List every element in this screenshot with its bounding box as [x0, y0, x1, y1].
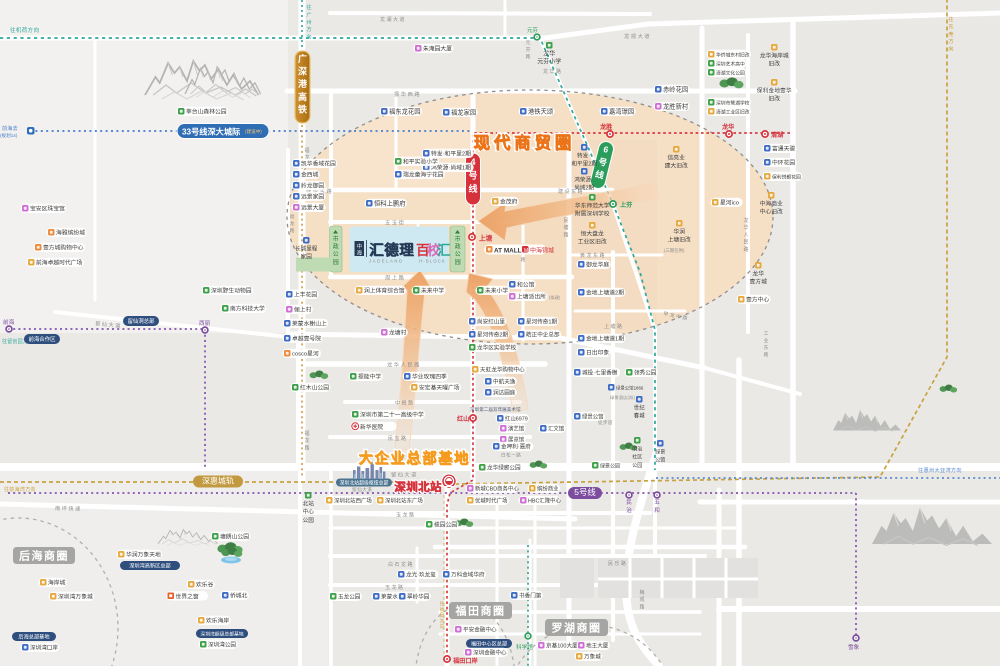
- svg-text:工业区旧改: 工业区旧改: [578, 238, 607, 246]
- svg-text:路: 路: [563, 231, 568, 238]
- svg-text:龙塘村: 龙塘村: [389, 329, 407, 337]
- svg-text:民宝路: 民宝路: [388, 435, 408, 442]
- svg-text:红山: 红山: [457, 415, 469, 423]
- svg-text:芬: 芬: [526, 46, 531, 53]
- svg-text:平安金融中心: 平安金融中心: [463, 626, 497, 634]
- svg-text:中海锦城: 中海锦城: [530, 247, 554, 255]
- svg-text:天虹龙华购物中心: 天虹龙华购物中心: [480, 366, 525, 374]
- svg-text:华: 华: [743, 224, 748, 231]
- svg-text:龙胜新村: 龙胜新村: [663, 102, 689, 111]
- svg-text:龙: 龙: [743, 217, 748, 224]
- svg-text:龙华海岸城: 龙华海岸城: [760, 52, 789, 60]
- svg-text:深圳湾口岸: 深圳湾口岸: [30, 644, 58, 652]
- svg-text:信亮业: 信亮业: [668, 154, 686, 162]
- svg-text:公园: 公园: [303, 517, 315, 524]
- svg-text:润达圆庭: 润达圆庭: [493, 389, 516, 397]
- svg-text:星河传奇2期: 星河传奇2期: [477, 331, 508, 339]
- svg-text:旧改: 旧改: [768, 95, 780, 103]
- svg-text:上塘: 上塘: [479, 234, 493, 243]
- svg-text:公: 公: [455, 251, 461, 258]
- svg-text:城投·七里香榭: 城投·七里香榭: [582, 369, 618, 377]
- svg-text:尚安红山里: 尚安红山里: [477, 318, 505, 326]
- svg-text:前海去: 前海去: [2, 125, 18, 132]
- svg-text:往惠州大亚湾方向: 往惠州大亚湾方向: [918, 466, 962, 474]
- svg-text:向: 向: [306, 33, 311, 41]
- svg-text:金西城: 金西城: [301, 171, 319, 179]
- svg-text:中海商业: 中海商业: [760, 200, 783, 208]
- svg-text:白松一路: 白松一路: [501, 452, 521, 459]
- svg-text:万象城: 万象城: [584, 653, 601, 661]
- svg-text:港: 港: [298, 78, 308, 89]
- svg-text:龙华区实验学校: 龙华区实验学校: [477, 344, 517, 352]
- svg-text:恒科上鹏府: 恒科上鹏府: [374, 199, 405, 208]
- svg-text:前海卓越时代广场: 前海卓越时代广场: [36, 259, 83, 267]
- svg-text:后海总部基地: 后海总部基地: [18, 633, 49, 641]
- svg-text:社区: 社区: [632, 454, 642, 461]
- svg-text:振能中学: 振能中学: [358, 373, 381, 381]
- svg-text:路: 路: [304, 444, 309, 451]
- svg-text:H-BLOCK: H-BLOCK: [419, 259, 446, 264]
- svg-text:海雅缤纷城: 海雅缤纷城: [56, 229, 85, 237]
- svg-text:罗湖商圈: 罗湖商圈: [552, 621, 602, 635]
- svg-text:福: 福: [304, 147, 309, 154]
- svg-text:工: 工: [764, 331, 769, 337]
- svg-text:园: 园: [455, 259, 461, 266]
- svg-text:元: 元: [526, 40, 531, 46]
- svg-text:梅: 梅: [639, 589, 644, 596]
- svg-text:深圳第二届双年展美术馆: 深圳第二届双年展美术馆: [470, 406, 521, 413]
- svg-text:龙观大道: 龙观大道: [624, 32, 651, 40]
- svg-text:清湖工业区旧改: 清湖工业区旧改: [716, 109, 750, 116]
- svg-text:留仙洞总部: 留仙洞总部: [128, 317, 156, 325]
- svg-text:侨城北: 侨城北: [230, 592, 248, 600]
- svg-text:广: 广: [298, 53, 307, 64]
- svg-text:上塘旧改: 上塘旧改: [668, 236, 691, 244]
- svg-text:民乐路: 民乐路: [608, 560, 628, 567]
- svg-text:莞: 莞: [948, 30, 953, 38]
- svg-text:旧改: 旧改: [768, 60, 780, 68]
- svg-text:往: 往: [440, 600, 445, 606]
- svg-text:保利悦都花园: 保利悦都花园: [772, 174, 801, 181]
- svg-text:西丽: 西丽: [199, 320, 211, 327]
- svg-text:塘朗山公园: 塘朗山公园: [220, 533, 249, 541]
- svg-text:东: 东: [764, 344, 769, 351]
- svg-text:演艺馆: 演艺馆: [508, 425, 525, 433]
- svg-text:往: 往: [948, 15, 953, 23]
- svg-text:远景家园: 远景家园: [301, 193, 324, 201]
- svg-text:俪上村: 俪上村: [294, 306, 312, 314]
- svg-text:新华医院: 新华医院: [360, 423, 383, 431]
- svg-text:徒步道: 徒步道: [598, 419, 613, 426]
- svg-text:元芬: 元芬: [527, 26, 538, 34]
- svg-text:路: 路: [521, 256, 526, 263]
- svg-text:广: 广: [306, 10, 311, 18]
- svg-text:民: 民: [563, 218, 568, 224]
- svg-text:未来中学: 未来中学: [421, 287, 444, 295]
- svg-text:路: 路: [743, 246, 748, 253]
- svg-text:深圳湾超级总部基地: 深圳湾超级总部基地: [200, 631, 243, 638]
- svg-text:莘台山森林公园: 莘台山森林公园: [186, 108, 227, 116]
- svg-text:M: M: [524, 248, 528, 254]
- svg-text:华侨城东村旧改: 华侨城东村旧改: [716, 52, 750, 59]
- svg-text:龙华路: 龙华路: [543, 68, 563, 75]
- svg-text:金地上塘道1期: 金地上塘道1期: [586, 335, 624, 343]
- svg-text:前海合作区: 前海合作区: [29, 335, 57, 343]
- svg-text:方: 方: [948, 37, 953, 45]
- svg-text:玉龙路: 玉龙路: [396, 512, 416, 519]
- svg-text:尚域2期: 尚域2期: [574, 184, 594, 192]
- svg-text:上塘派出所: 上塘派出所: [517, 293, 546, 301]
- svg-text:深惠城轨: 深惠城轨: [202, 476, 234, 486]
- svg-text:绿景: 绿景: [655, 449, 665, 456]
- svg-text:上丰花园: 上丰花园: [294, 291, 317, 299]
- svg-text:龙华: 龙华: [721, 123, 735, 131]
- svg-text:安宏基天曜广场: 安宏基天曜广场: [419, 384, 460, 392]
- svg-text:绿景公园: 绿景公园: [600, 463, 620, 470]
- svg-text:黄龙东路: 黄龙东路: [580, 252, 606, 259]
- svg-text:未来小学: 未来小学: [485, 287, 508, 295]
- svg-text:长城里程: 长城里程: [295, 245, 318, 253]
- svg-text:雪象: 雪象: [848, 643, 860, 651]
- svg-text:海: 海: [357, 249, 362, 257]
- svg-text:金茂府: 金茂府: [500, 198, 518, 206]
- svg-text:福龙家园: 福龙家园: [451, 108, 476, 117]
- svg-text:深圳艺术高中: 深圳艺术高中: [716, 61, 745, 68]
- svg-text:前海: 前海: [3, 318, 15, 326]
- svg-text:园: 园: [333, 259, 339, 266]
- svg-text:万科金域华府: 万科金域华府: [451, 571, 485, 579]
- svg-text:欢乐海岸: 欢乐海岸: [206, 617, 229, 625]
- svg-text:玉龙公园: 玉龙公园: [338, 593, 361, 601]
- svg-text:深圳北站西广场: 深圳北站西广场: [334, 497, 372, 505]
- svg-text:星河传奇1期: 星河传奇1期: [526, 318, 557, 326]
- svg-text:华润: 华润: [673, 228, 685, 236]
- svg-text:深圳野生动物园: 深圳野生动物园: [211, 287, 252, 295]
- svg-text:科学馆: 科学馆: [516, 643, 533, 651]
- svg-text:公园: 公园: [632, 463, 642, 469]
- svg-text:(建设中): (建设中): [245, 128, 262, 135]
- svg-text:HBC汇隆中心: HBC汇隆中心: [528, 497, 562, 505]
- svg-text:(三期在供): (三期在供): [664, 247, 685, 254]
- svg-text:塘: 塘: [563, 224, 568, 231]
- svg-text:凯华香域花园: 凯华香域花园: [301, 160, 336, 168]
- svg-text:中: 中: [357, 242, 362, 250]
- svg-text:岭龙御园: 岭龙御园: [301, 182, 324, 190]
- svg-text:五玉街: 五玉街: [385, 219, 405, 227]
- svg-text:路: 路: [290, 227, 295, 234]
- svg-text:方: 方: [306, 25, 311, 33]
- svg-text:往前海湾方向: 往前海湾方向: [4, 486, 36, 493]
- svg-text:州: 州: [306, 20, 311, 26]
- svg-text:中梅路: 中梅路: [395, 400, 415, 407]
- svg-text:汇德理: 汇德理: [370, 242, 415, 260]
- svg-text:金地上塘道2期: 金地上塘道2期: [586, 289, 624, 297]
- svg-text:华润万象天地: 华润万象天地: [126, 551, 161, 559]
- svg-text:龙华绿廊公园: 龙华绿廊公园: [487, 464, 521, 472]
- svg-text:嘉湾璟园: 嘉湾璟园: [609, 107, 634, 116]
- svg-text:福田中心区总部: 福田中心区总部: [471, 640, 507, 648]
- svg-text:壹方城: 壹方城: [750, 278, 768, 286]
- svg-text:绿景公馆1866: 绿景公馆1866: [616, 385, 644, 392]
- svg-text:汇文馆: 汇文馆: [548, 425, 565, 433]
- svg-text:龙华: 龙华: [543, 50, 555, 58]
- svg-text:家园: 家园: [301, 253, 313, 261]
- svg-text:御龙华庭: 御龙华庭: [586, 261, 609, 269]
- svg-text:壹方中心: 壹方中心: [746, 296, 769, 304]
- svg-text:龙光·玖龙玺: 龙光·玖龙玺: [406, 571, 436, 579]
- svg-text:宝安区珠宝馆: 宝安区珠宝馆: [30, 205, 65, 213]
- svg-text:路: 路: [764, 351, 769, 358]
- svg-text:33号线深大城际: 33号线深大城际: [182, 127, 241, 137]
- svg-text:往: 往: [306, 3, 311, 11]
- svg-text:现代商贸圈: 现代商贸圈: [474, 133, 576, 153]
- svg-text:振华西路: 振华西路: [394, 90, 421, 98]
- svg-text:和公馆: 和公馆: [517, 281, 535, 289]
- svg-text:和: 和: [654, 506, 660, 514]
- svg-text:路: 路: [526, 53, 531, 60]
- svg-text:港铁天颂: 港铁天颂: [528, 107, 554, 116]
- svg-text:赤岭花园: 赤岭花园: [663, 85, 688, 94]
- svg-text:深圳湾万象城: 深圳湾万象城: [58, 593, 93, 601]
- svg-text:人: 人: [743, 232, 748, 238]
- svg-text:恒大盘龙: 恒大盘龙: [581, 230, 604, 238]
- svg-text:和平里2期: 和平里2期: [571, 160, 597, 168]
- svg-text:福田商圈: 福田商圈: [455, 604, 506, 618]
- svg-text:壹方城购物中心: 壹方城购物中心: [43, 244, 84, 252]
- svg-text:深圳市鹭湖学校: 深圳市鹭湖学校: [716, 100, 750, 107]
- svg-text:鸿荣源·: 鸿荣源·: [574, 176, 593, 184]
- svg-text:上塘路: 上塘路: [604, 323, 624, 330]
- svg-text:中航天逸: 中航天逸: [493, 378, 516, 386]
- svg-text:深圳市第二十一高级中学: 深圳市第二十一高级中学: [360, 411, 424, 419]
- svg-text:深: 深: [298, 66, 307, 77]
- svg-text:龙: 龙: [290, 220, 295, 227]
- svg-text:特发·和平里2期: 特发·和平里2期: [431, 150, 471, 158]
- svg-text:皓正中企总部: 皓正中企总部: [526, 331, 560, 339]
- svg-text:华东师范大学: 华东师范大学: [575, 202, 610, 210]
- svg-text:向: 向: [440, 623, 444, 629]
- svg-text:深圳湾公园: 深圳湾公园: [208, 641, 236, 649]
- svg-text:清湖文化公园: 清湖文化公园: [716, 70, 745, 77]
- svg-text:留仙大道: 留仙大道: [391, 471, 418, 479]
- svg-text:民: 民: [743, 240, 748, 246]
- svg-text:特发·: 特发·: [577, 152, 590, 160]
- svg-text:领秀公园: 领秀公园: [634, 369, 657, 377]
- svg-text:中环花园: 中环花园: [772, 159, 795, 167]
- svg-text:卓越壹号院: 卓越壹号院: [292, 335, 321, 343]
- svg-text:元芬小学: 元芬小学: [537, 58, 561, 66]
- svg-text:北站: 北站: [303, 500, 315, 508]
- svg-text:红山6979: 红山6979: [505, 415, 528, 423]
- svg-text:公馆: 公馆: [655, 457, 665, 464]
- svg-text:日出印象: 日出印象: [586, 349, 609, 357]
- svg-text:红木山公园: 红木山公园: [300, 384, 329, 392]
- svg-text:地王大厦: 地王大厦: [586, 642, 609, 650]
- svg-text:龙华: 龙华: [752, 270, 764, 278]
- svg-text:深圳北站: 深圳北站: [395, 480, 443, 494]
- svg-text:高: 高: [298, 91, 307, 102]
- svg-text:深圳北站东广场: 深圳北站东广场: [385, 497, 423, 505]
- svg-text:京基100大厦: 京基100大厦: [546, 642, 578, 650]
- svg-text:星河ico: 星河ico: [720, 199, 739, 207]
- svg-text:龙澜大道: 龙澜大道: [380, 16, 406, 23]
- svg-text:翠岭华园: 翠岭华园: [407, 593, 430, 601]
- svg-text:向: 向: [948, 45, 953, 53]
- svg-text:JADELAND: JADELAND: [369, 259, 404, 264]
- svg-text:福: 福: [290, 213, 295, 220]
- svg-text:福: 福: [304, 430, 309, 437]
- svg-text:缤纷商业: 缤纷商业: [537, 485, 559, 493]
- svg-text:5号线: 5号线: [574, 487, 596, 497]
- svg-text:政: 政: [455, 243, 461, 251]
- svg-text:世界之窗: 世界之窗: [176, 593, 199, 601]
- svg-text:市: 市: [333, 235, 339, 243]
- svg-text:周上路: 周上路: [385, 274, 405, 282]
- svg-text:朱淹园大厦: 朱淹园大厦: [423, 45, 452, 53]
- svg-text:路: 路: [639, 603, 644, 610]
- svg-text:建大旧改: 建大旧改: [665, 162, 688, 170]
- svg-text:五: 五: [654, 499, 660, 506]
- svg-text:华业玫瑰四季: 华业玫瑰四季: [412, 373, 447, 381]
- svg-text:海岸城: 海岸城: [48, 579, 66, 587]
- svg-text:清湖: 清湖: [771, 131, 783, 139]
- svg-text:线: 线: [468, 183, 477, 194]
- svg-text:往机荷方向: 往机荷方向: [10, 26, 39, 34]
- svg-text:民: 民: [626, 499, 632, 506]
- svg-text:南方科技大学: 南方科技大学: [230, 305, 265, 313]
- svg-text:保利金地壹华: 保利金地壹华: [757, 87, 792, 95]
- svg-text:绿景酒店(拟): 绿景酒店(拟): [610, 394, 636, 401]
- svg-text:附属深圳学校: 附属深圳学校: [575, 210, 610, 218]
- svg-text:书香门第: 书香门第: [519, 592, 542, 600]
- svg-text:上芬: 上芬: [620, 201, 633, 209]
- svg-text:·: ·: [411, 245, 414, 255]
- svg-text:中心旧改: 中心旧改: [760, 208, 783, 216]
- svg-text:新城CBD商务中心: 新城CBD商务中心: [475, 485, 519, 493]
- svg-text:留仙大道: 留仙大道: [352, 486, 372, 493]
- svg-text:远景大厦: 远景大厦: [301, 204, 324, 212]
- svg-text:(规划14): (规划14): [0, 132, 18, 139]
- svg-text:优城时代广场: 优城时代广场: [475, 497, 508, 505]
- svg-text:深圳金融中心: 深圳金融中心: [473, 649, 507, 657]
- svg-text:富通天骏: 富通天骏: [772, 145, 795, 153]
- svg-text:公: 公: [333, 251, 339, 258]
- svg-text:明治: 明治: [632, 446, 642, 453]
- svg-text:玉龙路: 玉龙路: [385, 584, 405, 591]
- svg-text:中心: 中心: [303, 508, 315, 516]
- svg-text:白石龙路: 白石龙路: [388, 561, 414, 568]
- svg-text:大企业总部基地: 大企业总部基地: [359, 450, 470, 468]
- svg-text:润上体育综合馆: 润上体育综合馆: [364, 287, 405, 295]
- svg-text:福田口岸: 福田口岸: [452, 657, 479, 665]
- svg-text:福东龙花园: 福东龙花园: [389, 107, 420, 116]
- svg-text:莱蒙水榭山上: 莱蒙水榭山上: [292, 320, 327, 328]
- svg-text:后海商圈: 后海商圈: [19, 549, 69, 563]
- svg-text:世纪: 世纪: [634, 404, 645, 412]
- svg-text:春城: 春城: [634, 412, 645, 420]
- svg-text:龙胜: 龙胜: [599, 123, 613, 131]
- svg-text:金呷利·嘉府: 金呷利·嘉府: [501, 443, 531, 451]
- svg-text:(拟建): (拟建): [549, 294, 561, 301]
- svg-text:铁: 铁: [298, 103, 307, 114]
- svg-text:汇: 汇: [437, 243, 451, 258]
- svg-text:cosco星河: cosco星河: [292, 350, 319, 358]
- svg-text:政: 政: [333, 243, 339, 251]
- svg-text:欢乐谷: 欢乐谷: [196, 581, 214, 589]
- svg-text:深圳北站超级枢纽总部: 深圳北站超级枢纽总部: [340, 480, 389, 487]
- svg-text:治: 治: [626, 506, 632, 514]
- svg-text:号: 号: [468, 171, 477, 181]
- svg-text:业: 业: [764, 337, 769, 344]
- svg-text:龙: 龙: [304, 437, 309, 444]
- svg-text:和平实验小学: 和平实验小学: [403, 158, 438, 166]
- svg-text:龙华人民路: 龙华人民路: [387, 361, 421, 369]
- svg-text:瑞龙童海宁花园: 瑞龙童海宁花园: [403, 171, 444, 179]
- svg-text:东: 东: [948, 22, 953, 30]
- svg-text:AT MALL: AT MALL: [494, 248, 522, 255]
- svg-text:市: 市: [455, 235, 461, 243]
- svg-text:榄园公园: 榄园公园: [434, 521, 457, 529]
- svg-text:观: 观: [639, 597, 644, 603]
- svg-text:深圳湾高新区总部: 深圳湾高新区总部: [129, 562, 171, 570]
